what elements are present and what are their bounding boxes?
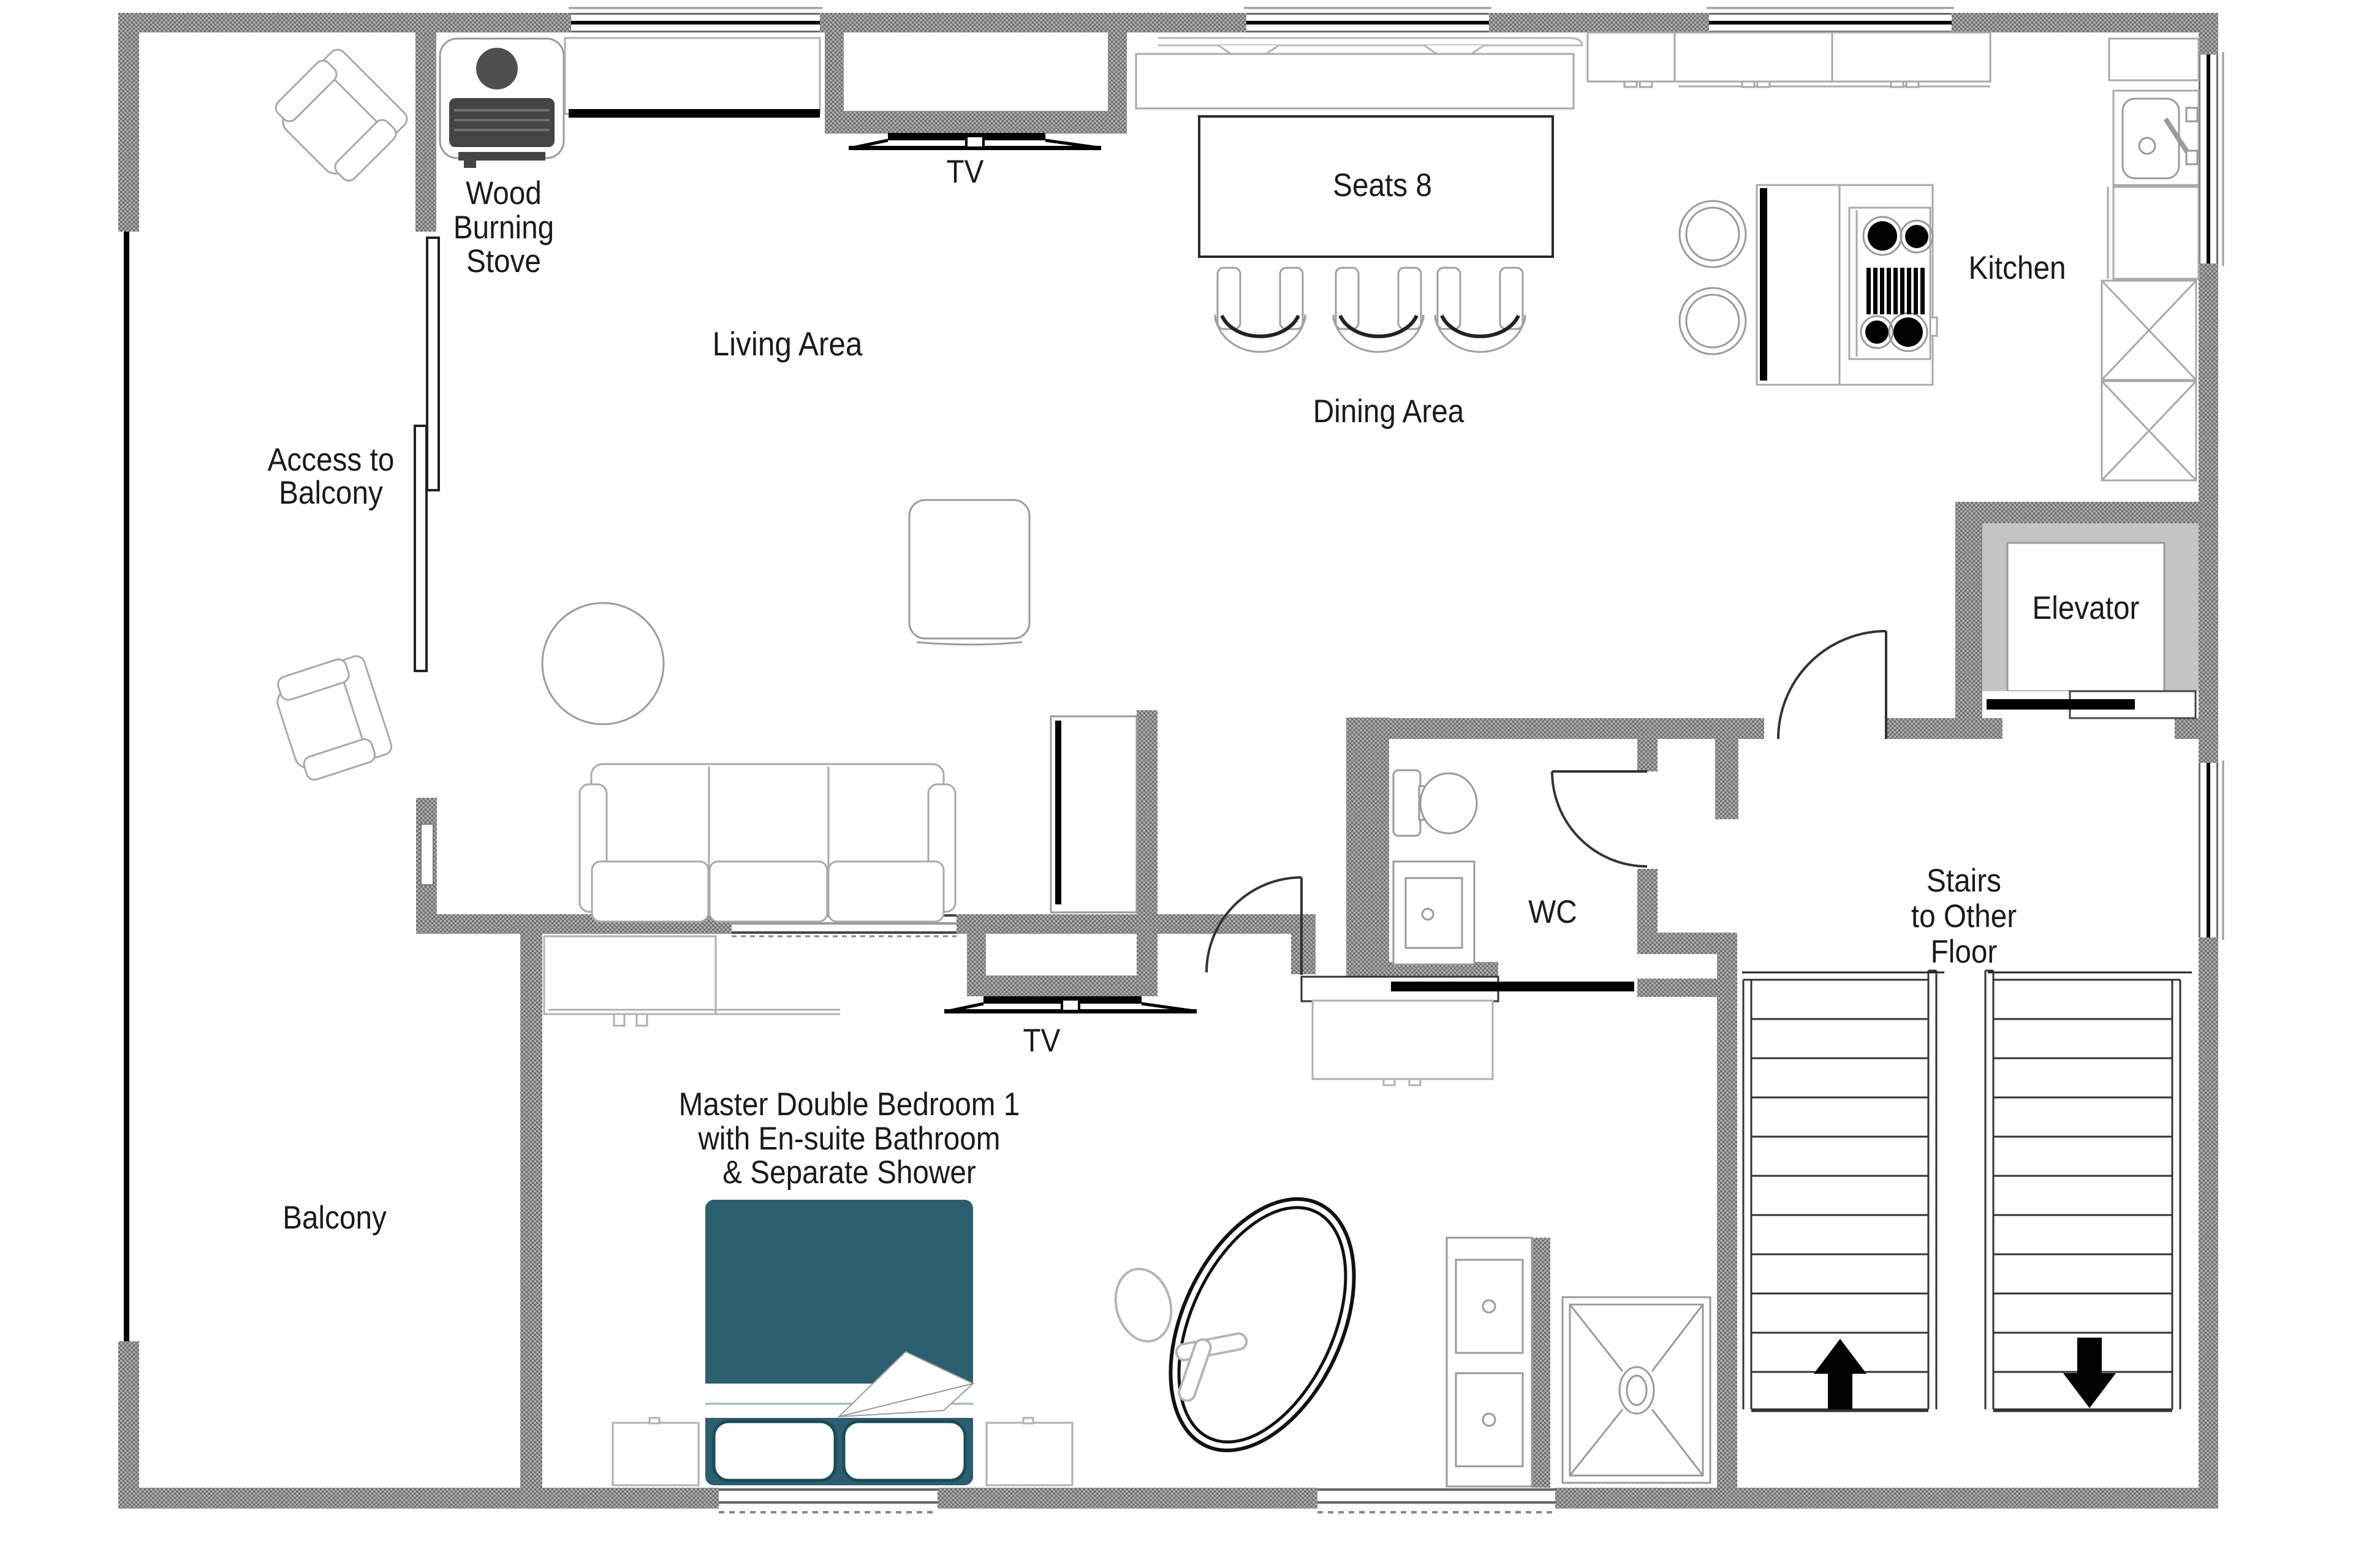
- svg-text:Kitchen: Kitchen: [1968, 249, 2066, 286]
- svg-text:Elevator: Elevator: [2033, 589, 2140, 626]
- svg-text:to Other: to Other: [1911, 898, 2017, 934]
- svg-text:Wood: Wood: [466, 175, 542, 211]
- svg-text:Living Area: Living Area: [713, 326, 863, 363]
- svg-text:with En-suite Bathroom: with En-suite Bathroom: [698, 1120, 1001, 1157]
- svg-text:Master Double Bedroom 1: Master Double Bedroom 1: [679, 1086, 1020, 1123]
- svg-text:Floor: Floor: [1931, 933, 1998, 970]
- svg-text:Stairs: Stairs: [1927, 862, 2001, 899]
- svg-text:Burning: Burning: [453, 209, 554, 246]
- svg-text:TV: TV: [947, 153, 984, 190]
- svg-text:Balcony: Balcony: [279, 474, 383, 511]
- svg-text:& Separate Shower: & Separate Shower: [722, 1154, 976, 1191]
- svg-text:TV: TV: [1023, 1022, 1061, 1059]
- svg-text:WC: WC: [1528, 893, 1577, 930]
- svg-text:Seats 8: Seats 8: [1333, 167, 1432, 203]
- svg-text:Access to: Access to: [268, 441, 395, 478]
- svg-text:Stove: Stove: [466, 243, 541, 279]
- svg-text:Balcony: Balcony: [282, 1199, 387, 1236]
- svg-text:Dining Area: Dining Area: [1313, 393, 1464, 430]
